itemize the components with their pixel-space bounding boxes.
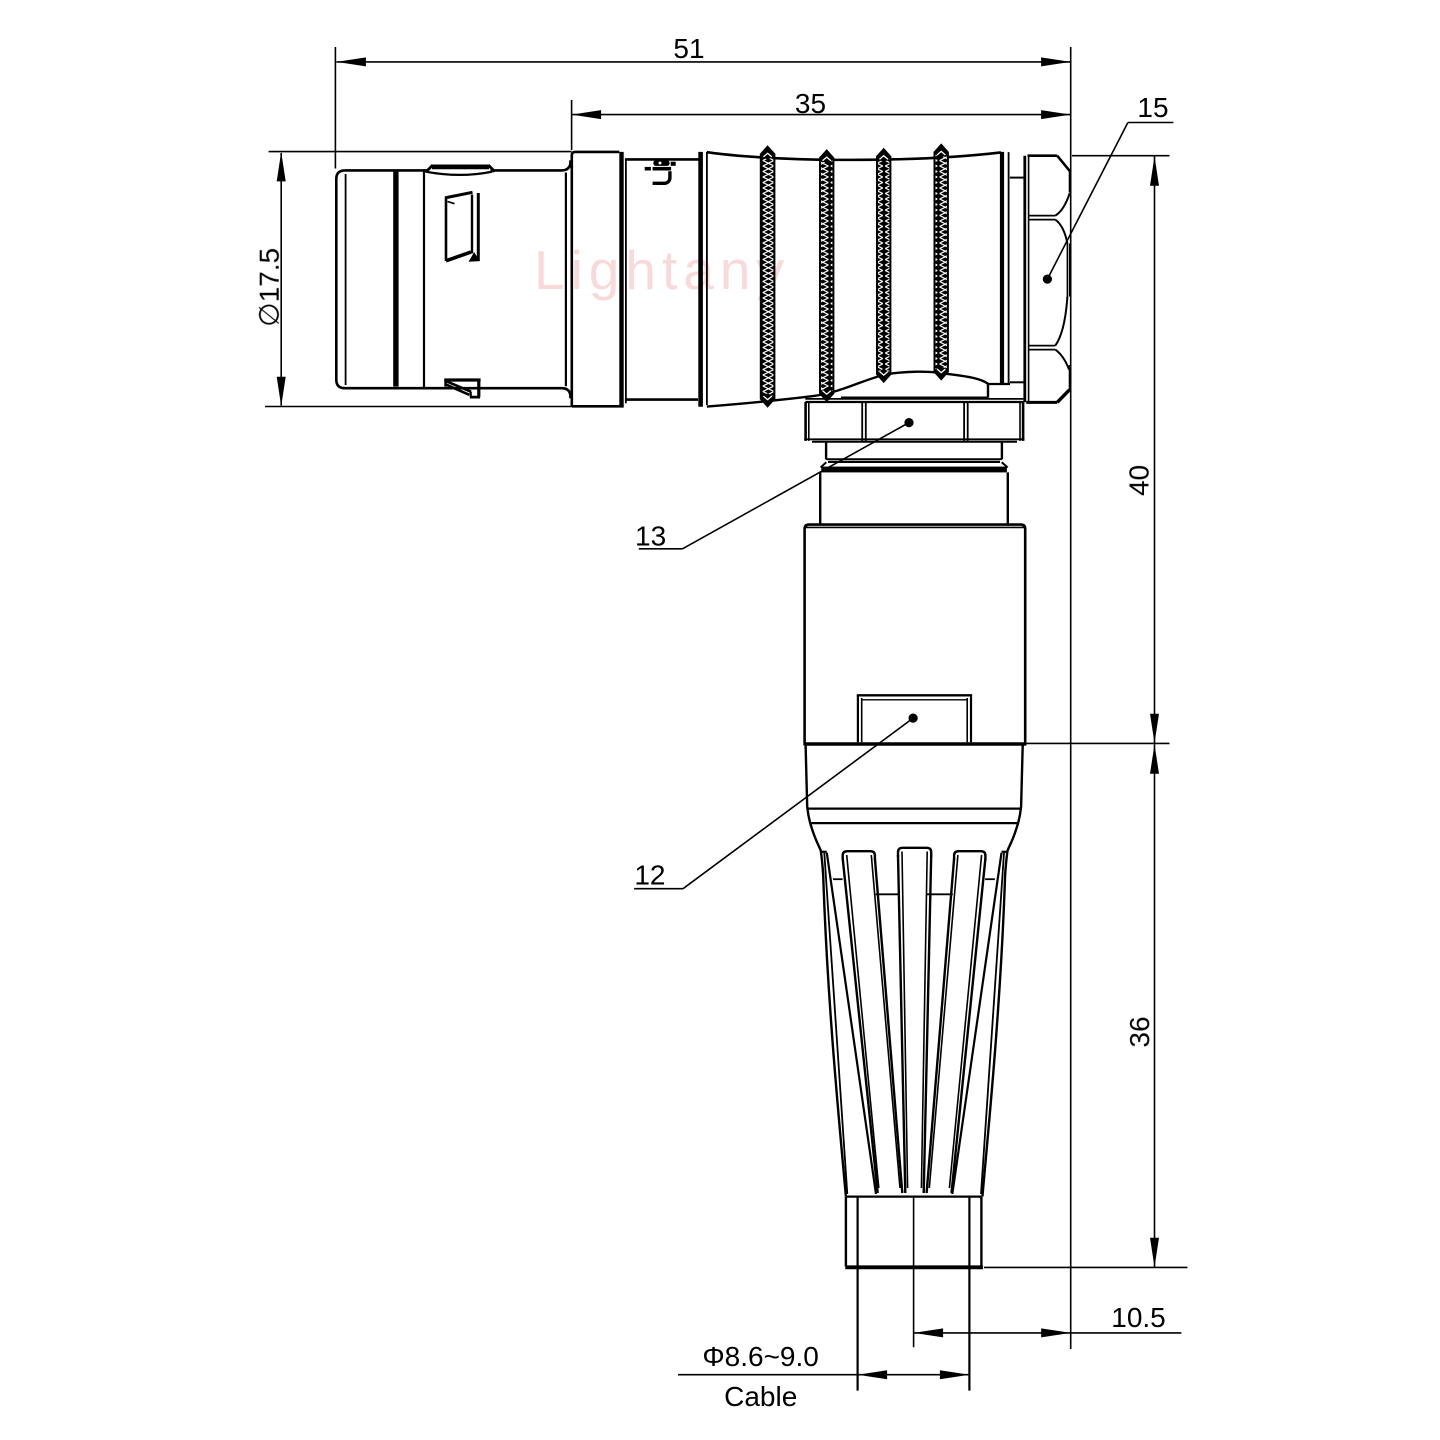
svg-text:Φ8.6~9.0: Φ8.6~9.0 bbox=[702, 1341, 819, 1372]
svg-text:12: 12 bbox=[634, 860, 665, 891]
svg-text:40: 40 bbox=[1123, 465, 1154, 496]
svg-text:15: 15 bbox=[1137, 92, 1168, 123]
svg-text:35: 35 bbox=[795, 88, 826, 119]
svg-text:36: 36 bbox=[1124, 1016, 1155, 1047]
svg-text:51: 51 bbox=[673, 33, 704, 64]
svg-text:Cable: Cable bbox=[724, 1381, 797, 1412]
svg-text:10.5: 10.5 bbox=[1111, 1302, 1166, 1333]
svg-text:∅17.5: ∅17.5 bbox=[254, 248, 285, 327]
svg-text:13: 13 bbox=[635, 521, 666, 552]
